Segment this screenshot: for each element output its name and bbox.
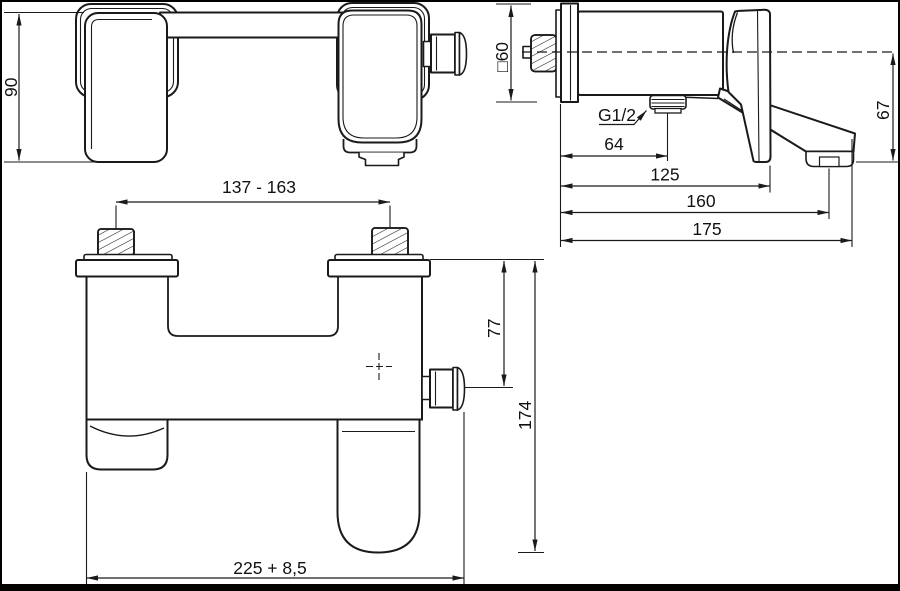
plan-left-inlet-hatch: [98, 229, 134, 257]
dimension-label-160: 160: [686, 191, 715, 211]
plan-handle: [87, 420, 168, 470]
dimension-label-225: 225 + 8,5: [233, 558, 306, 578]
plan-spout: [338, 420, 420, 553]
front-aerator: [359, 153, 404, 166]
side-wall-union-threads: [531, 35, 557, 72]
side-aerator-insert: [820, 157, 840, 167]
plan-diverter-neck: [422, 377, 430, 400]
front-spout-body: [339, 11, 422, 143]
plan-right-flange: [328, 260, 430, 277]
dimension-label-67: 67: [873, 101, 893, 120]
front-handle: [85, 13, 167, 162]
side-outlet-neck: [655, 109, 681, 114]
dimension-label-175: 175: [692, 219, 721, 239]
dimension-label-137-163: 137 - 163: [222, 177, 296, 197]
plan-right-inlet-hatch: [372, 228, 408, 257]
side-body: [578, 12, 723, 96]
plan-left-flange: [76, 260, 178, 277]
thread-label-g12: G1/2: [598, 105, 636, 125]
front-diverter-knob: [431, 35, 455, 73]
plan-diverter-knob: [430, 370, 453, 408]
dimension-label-90: 90: [1, 77, 21, 97]
plan-diverter-cap: [458, 368, 465, 411]
dimension-label-64: 64: [604, 134, 624, 154]
dimension-label-125: 125: [650, 165, 679, 185]
front-bridge-bar: [160, 13, 346, 38]
technical-drawing-page: 90 □60 G1/2: [0, 0, 900, 591]
faucet-technical-drawing: 90 □60 G1/2: [0, 0, 900, 591]
front-diverter-cap: [460, 33, 467, 76]
dimension-label-sq60: □60: [492, 42, 512, 72]
side-wall-flange: [561, 4, 578, 103]
dimension-label-77: 77: [484, 319, 504, 338]
dimension-label-174: 174: [515, 401, 535, 430]
drawing-frame-bottom-bar: [0, 584, 900, 591]
plan-body-fill: [87, 277, 423, 420]
